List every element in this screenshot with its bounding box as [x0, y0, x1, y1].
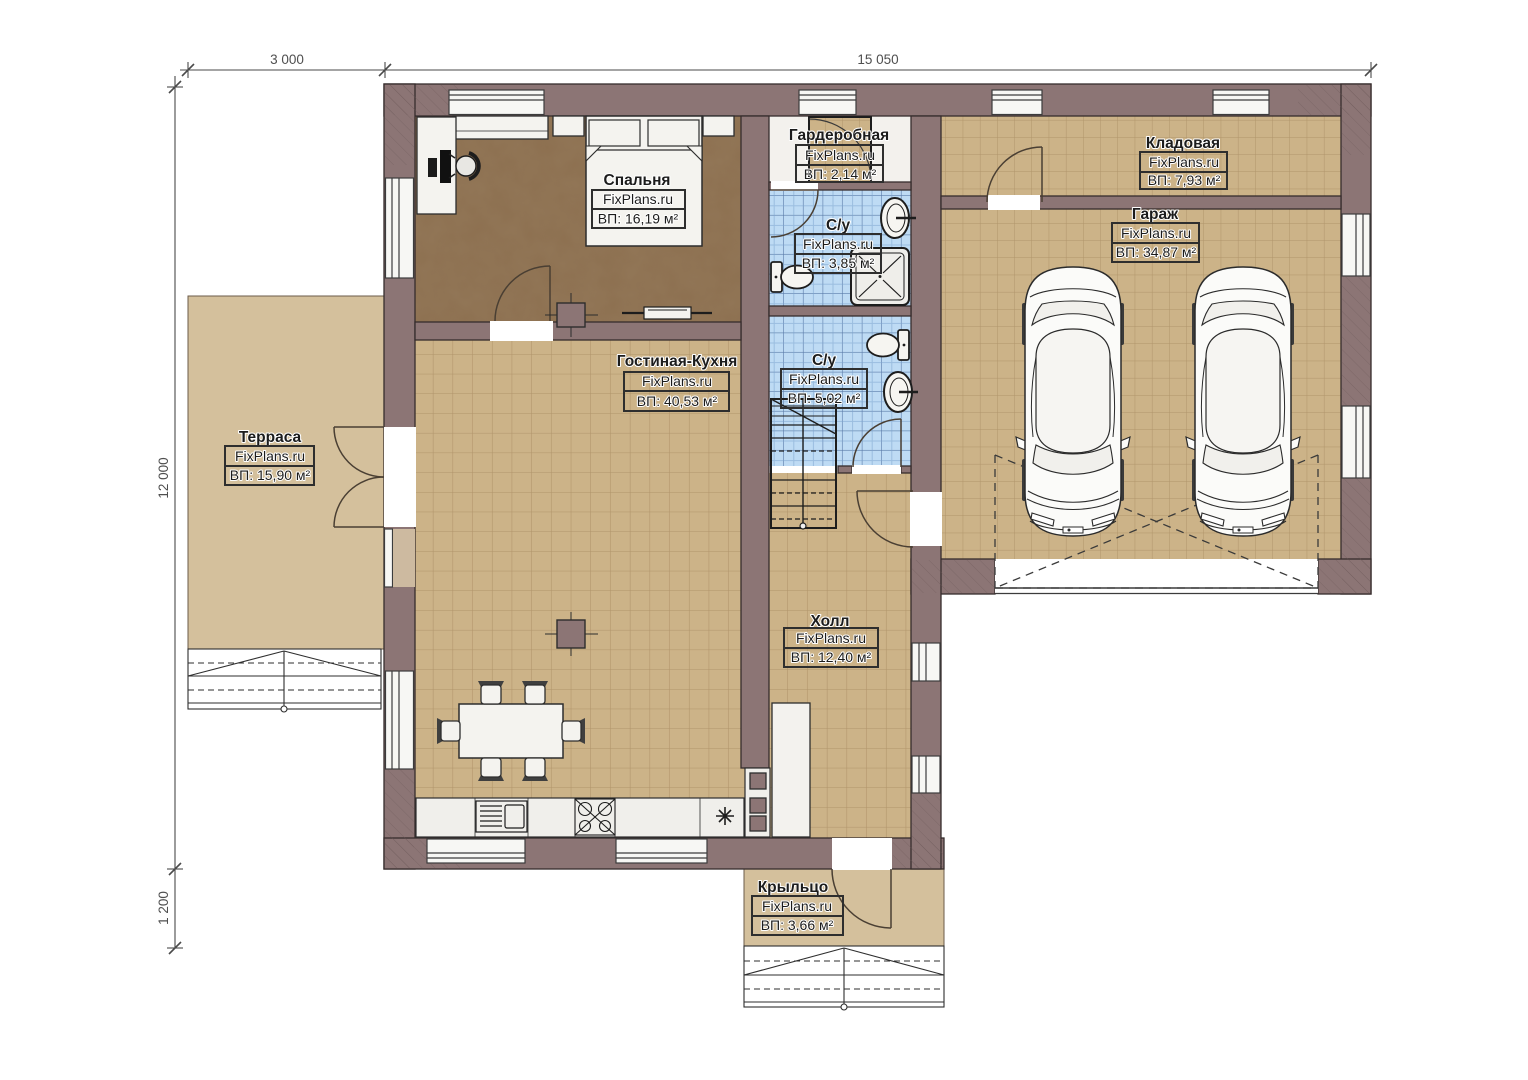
svg-text:FixPlans.ru: FixPlans.ru	[805, 147, 875, 163]
svg-text:15 050: 15 050	[857, 52, 898, 67]
svg-text:Гардеробная: Гардеробная	[789, 127, 889, 144]
svg-text:ВП: 7,93 м²: ВП: 7,93 м²	[1148, 172, 1221, 188]
svg-text:ВП: 2,14 м²: ВП: 2,14 м²	[804, 166, 877, 182]
svg-text:Гараж: Гараж	[1132, 206, 1179, 223]
svg-text:FixPlans.ru: FixPlans.ru	[603, 191, 673, 207]
svg-text:Терраса: Терраса	[239, 429, 302, 446]
svg-text:Гостиная-Кухня: Гостиная-Кухня	[617, 353, 738, 370]
svg-text:ВП: 15,90 м²: ВП: 15,90 м²	[230, 467, 311, 483]
svg-text:FixPlans.ru: FixPlans.ru	[1149, 154, 1219, 170]
svg-text:С/у: С/у	[826, 217, 851, 234]
svg-text:1 200: 1 200	[156, 891, 171, 925]
svg-text:FixPlans.ru: FixPlans.ru	[796, 630, 866, 646]
svg-text:FixPlans.ru: FixPlans.ru	[803, 236, 873, 252]
svg-text:FixPlans.ru: FixPlans.ru	[235, 448, 305, 464]
svg-text:Крыльцо: Крыльцо	[758, 879, 829, 896]
svg-text:ВП: 5,02 м²: ВП: 5,02 м²	[788, 390, 861, 406]
svg-text:FixPlans.ru: FixPlans.ru	[1121, 225, 1191, 241]
svg-text:ВП: 40,53 м²: ВП: 40,53 м²	[637, 393, 718, 409]
svg-text:С/у: С/у	[812, 352, 837, 369]
svg-text:ВП: 3,66 м²: ВП: 3,66 м²	[761, 917, 834, 933]
svg-text:3 000: 3 000	[270, 52, 304, 67]
svg-text:12 000: 12 000	[156, 457, 171, 498]
svg-text:Спальня: Спальня	[604, 172, 671, 189]
svg-text:ВП: 12,40 м²: ВП: 12,40 м²	[791, 649, 872, 665]
svg-text:Кладовая: Кладовая	[1146, 135, 1220, 152]
svg-text:FixPlans.ru: FixPlans.ru	[762, 898, 832, 914]
svg-text:FixPlans.ru: FixPlans.ru	[789, 371, 859, 387]
svg-text:FixPlans.ru: FixPlans.ru	[642, 373, 712, 389]
svg-text:ВП: 3,85 м²: ВП: 3,85 м²	[802, 255, 875, 271]
svg-text:ВП: 16,19 м²: ВП: 16,19 м²	[598, 211, 679, 227]
svg-text:ВП: 34,87 м²: ВП: 34,87 м²	[1116, 244, 1197, 260]
